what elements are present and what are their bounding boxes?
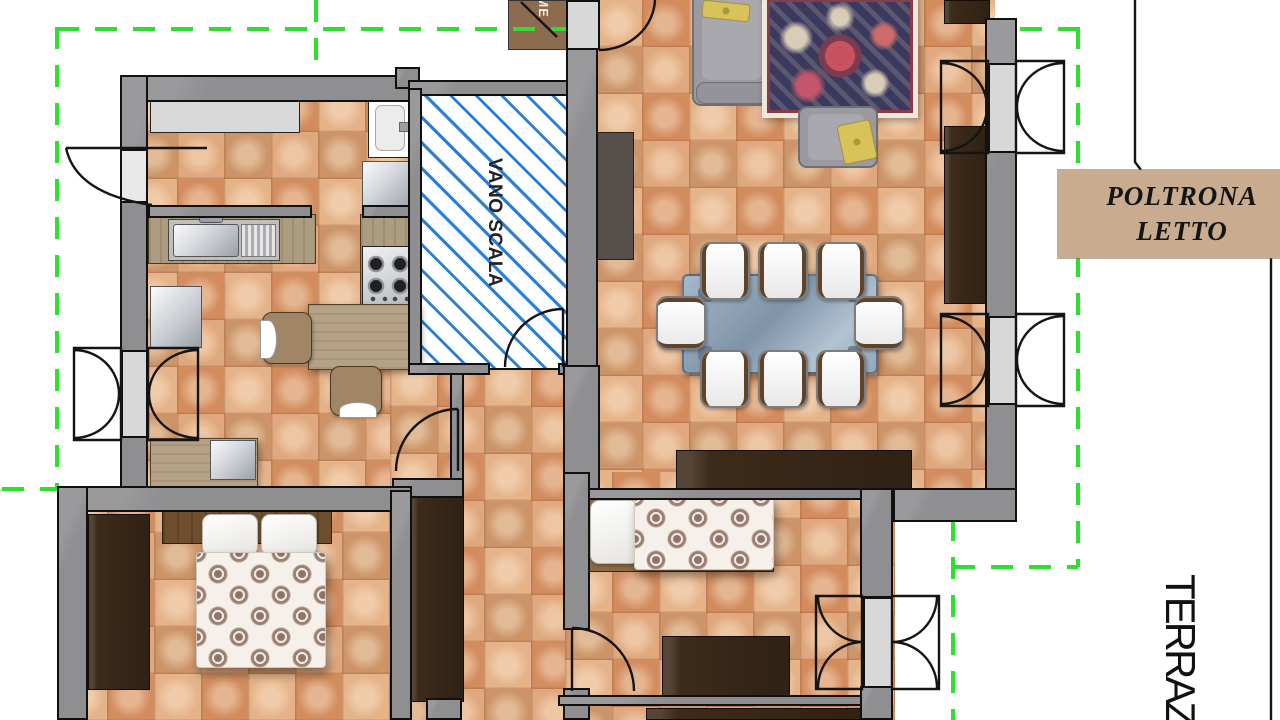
entry-door-leaf <box>521 2 557 37</box>
kitchen-door-arc <box>396 409 458 471</box>
window-right2-inner <box>941 314 988 406</box>
sofa-bed-callout: POLTRONA LETTO <box>1058 170 1280 258</box>
window-bedroom2-outer <box>892 596 939 689</box>
window-left-outer <box>74 348 121 440</box>
window-right1-outer <box>1016 61 1064 153</box>
floor-plan: WELCOME <box>0 0 1280 720</box>
bathroom-door-arc <box>66 148 207 205</box>
callout-leader-right <box>1266 214 1271 720</box>
terrace-label: TERRAZZA <box>1156 574 1204 720</box>
window-bedroom2-inner <box>816 596 862 689</box>
stairwell-label: VANO SCALA <box>483 158 505 287</box>
window-right2-outer <box>1016 314 1064 406</box>
door-window-symbols <box>0 0 1280 720</box>
entry-door-arc <box>599 0 655 50</box>
window-left-inner <box>148 348 198 440</box>
window-right1-inner <box>941 61 988 153</box>
callout-leader-top <box>1135 0 1141 170</box>
stairwell-door-arc <box>505 309 563 367</box>
bedroom2-door-arc <box>572 628 634 691</box>
